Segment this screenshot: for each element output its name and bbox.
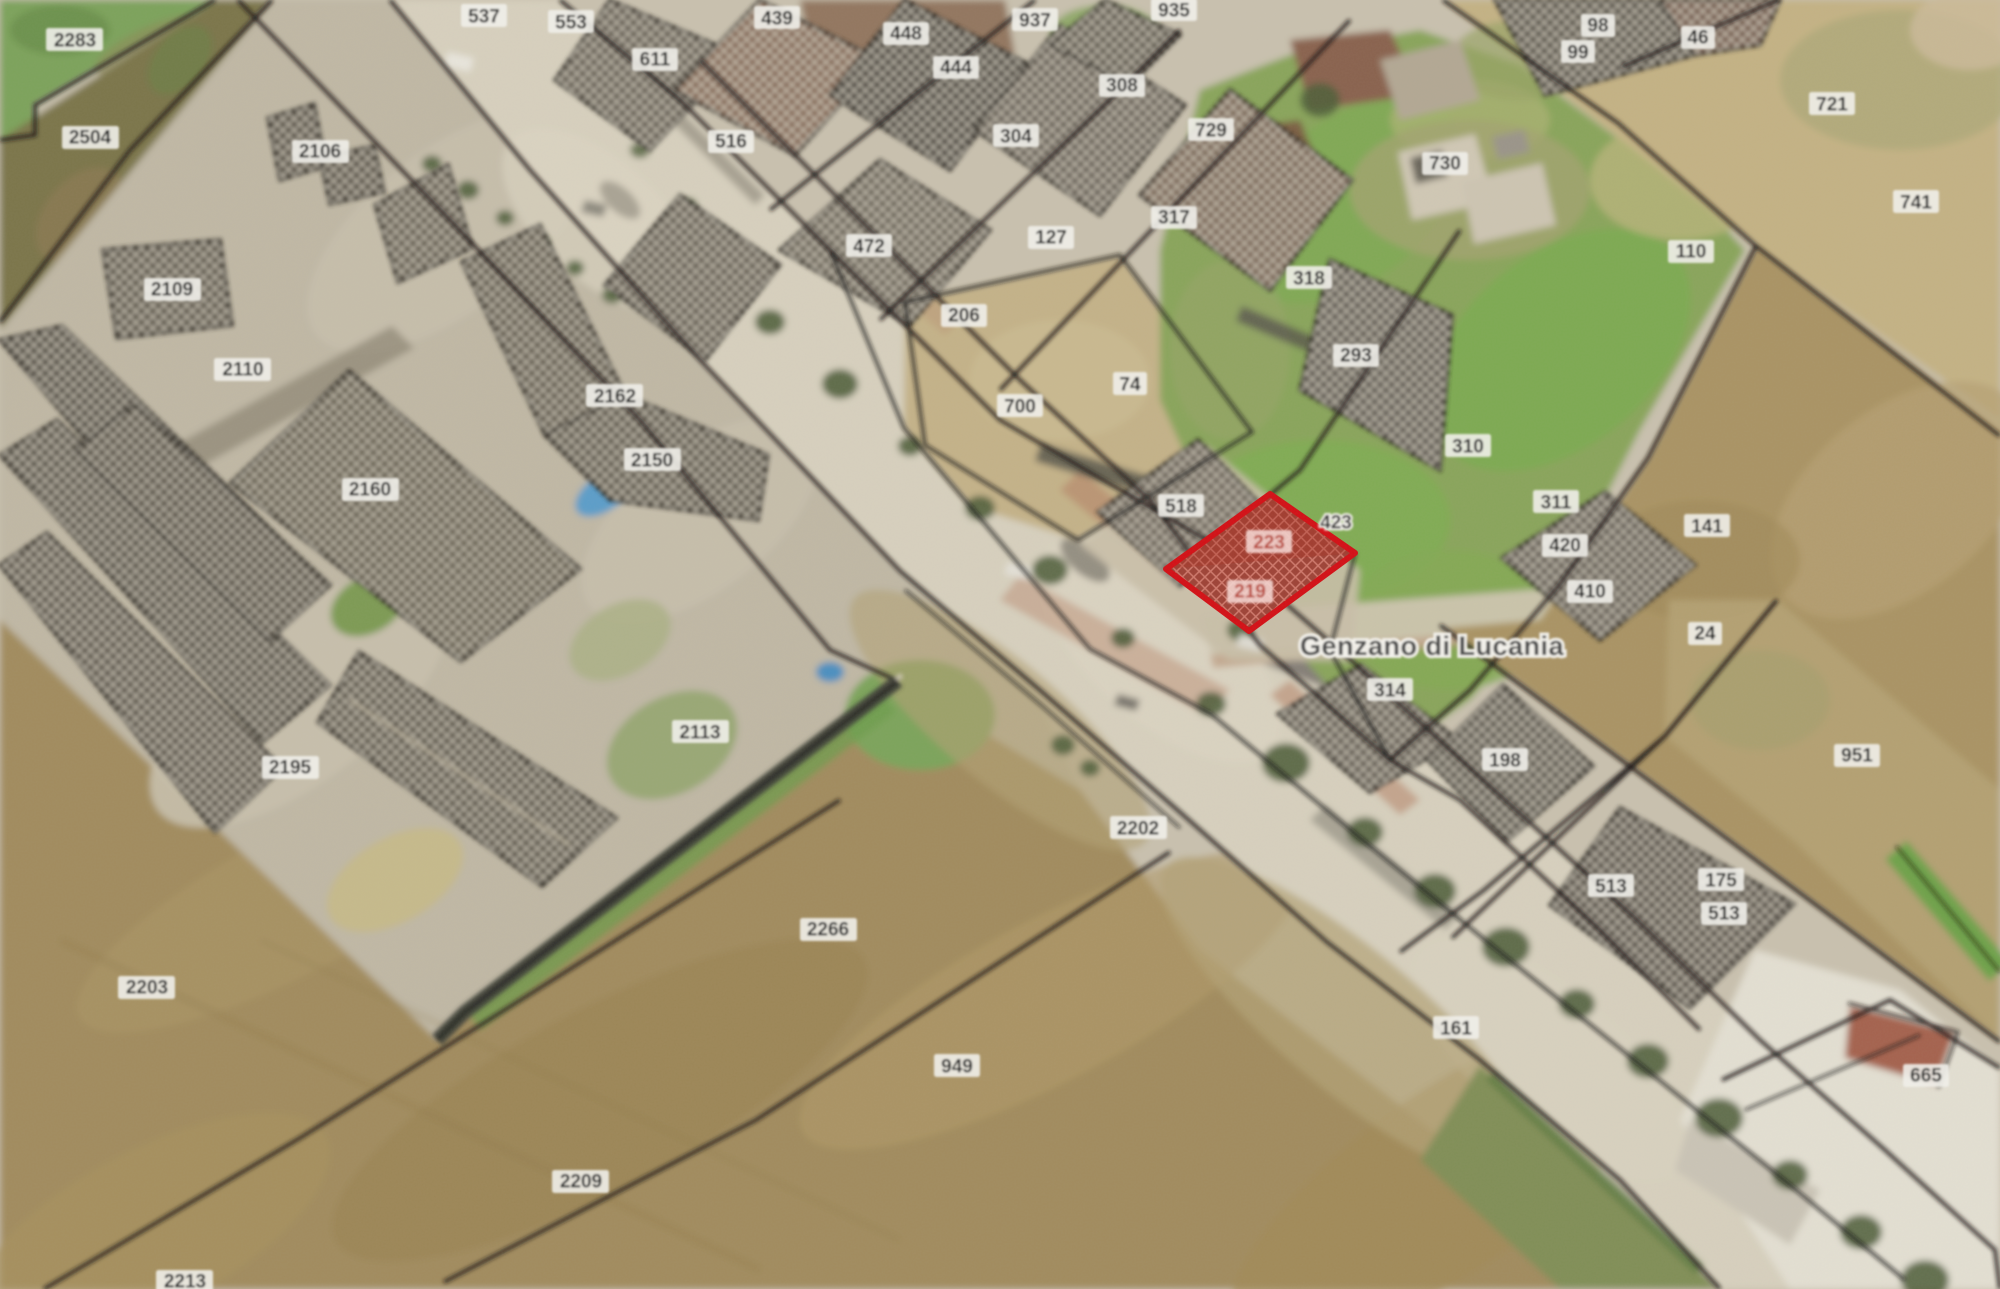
svg-text:175: 175	[1705, 871, 1737, 892]
svg-text:161: 161	[1440, 1019, 1472, 1040]
svg-text:2110: 2110	[222, 360, 263, 381]
svg-text:2283: 2283	[54, 31, 96, 52]
svg-text:2109: 2109	[151, 280, 193, 301]
svg-text:935: 935	[1158, 1, 1190, 22]
svg-text:99: 99	[1567, 43, 1588, 64]
svg-text:198: 198	[1489, 751, 1521, 772]
svg-text:951: 951	[1841, 746, 1873, 767]
svg-text:2203: 2203	[126, 978, 168, 999]
svg-text:219: 219	[1234, 582, 1266, 603]
svg-text:98: 98	[1587, 16, 1608, 37]
svg-text:721: 721	[1816, 95, 1848, 116]
svg-text:74: 74	[1119, 375, 1141, 396]
svg-text:439: 439	[761, 9, 793, 30]
svg-text:2113: 2113	[679, 723, 720, 744]
svg-text:730: 730	[1429, 154, 1461, 175]
svg-text:110: 110	[1676, 242, 1707, 263]
svg-text:420: 420	[1549, 536, 1581, 557]
svg-text:949: 949	[941, 1057, 973, 1078]
svg-text:2106: 2106	[299, 142, 341, 163]
svg-text:937: 937	[1019, 11, 1051, 32]
svg-text:448: 448	[890, 24, 922, 45]
svg-text:318: 318	[1293, 269, 1325, 290]
svg-text:2504: 2504	[69, 128, 112, 149]
svg-text:223: 223	[1253, 533, 1285, 554]
svg-text:553: 553	[555, 13, 587, 34]
svg-text:700: 700	[1004, 397, 1036, 418]
svg-text:611: 611	[640, 50, 671, 71]
svg-text:2162: 2162	[594, 387, 636, 408]
svg-text:2213: 2213	[164, 1272, 206, 1289]
svg-text:741: 741	[1900, 193, 1932, 214]
svg-text:2266: 2266	[807, 920, 849, 941]
svg-text:423: 423	[1320, 513, 1352, 534]
svg-text:127: 127	[1035, 228, 1067, 249]
svg-text:472: 472	[853, 237, 885, 258]
svg-text:308: 308	[1106, 76, 1138, 97]
svg-text:518: 518	[1165, 497, 1197, 518]
svg-text:513: 513	[1595, 877, 1627, 898]
svg-text:2150: 2150	[631, 451, 673, 472]
svg-text:2202: 2202	[1117, 819, 1159, 840]
svg-text:665: 665	[1910, 1066, 1942, 1087]
svg-text:410: 410	[1574, 582, 1606, 603]
svg-text:317: 317	[1158, 208, 1190, 229]
svg-text:24: 24	[1694, 624, 1716, 645]
svg-text:304: 304	[1000, 127, 1032, 148]
svg-text:141: 141	[1691, 517, 1723, 538]
svg-text:2209: 2209	[560, 1172, 602, 1193]
svg-text:311: 311	[1541, 493, 1572, 514]
svg-text:729: 729	[1195, 121, 1227, 142]
svg-text:537: 537	[468, 7, 500, 28]
svg-text:310: 310	[1452, 437, 1484, 458]
svg-text:206: 206	[948, 306, 980, 327]
svg-text:46: 46	[1687, 28, 1708, 49]
svg-text:2160: 2160	[349, 480, 391, 501]
svg-text:444: 444	[940, 58, 972, 79]
svg-text:293: 293	[1340, 346, 1372, 367]
svg-text:Genzano di Lucania: Genzano di Lucania	[1300, 631, 1565, 661]
svg-text:2195: 2195	[269, 758, 312, 779]
svg-text:314: 314	[1374, 681, 1406, 702]
svg-text:513: 513	[1708, 904, 1740, 925]
svg-text:516: 516	[715, 132, 747, 153]
